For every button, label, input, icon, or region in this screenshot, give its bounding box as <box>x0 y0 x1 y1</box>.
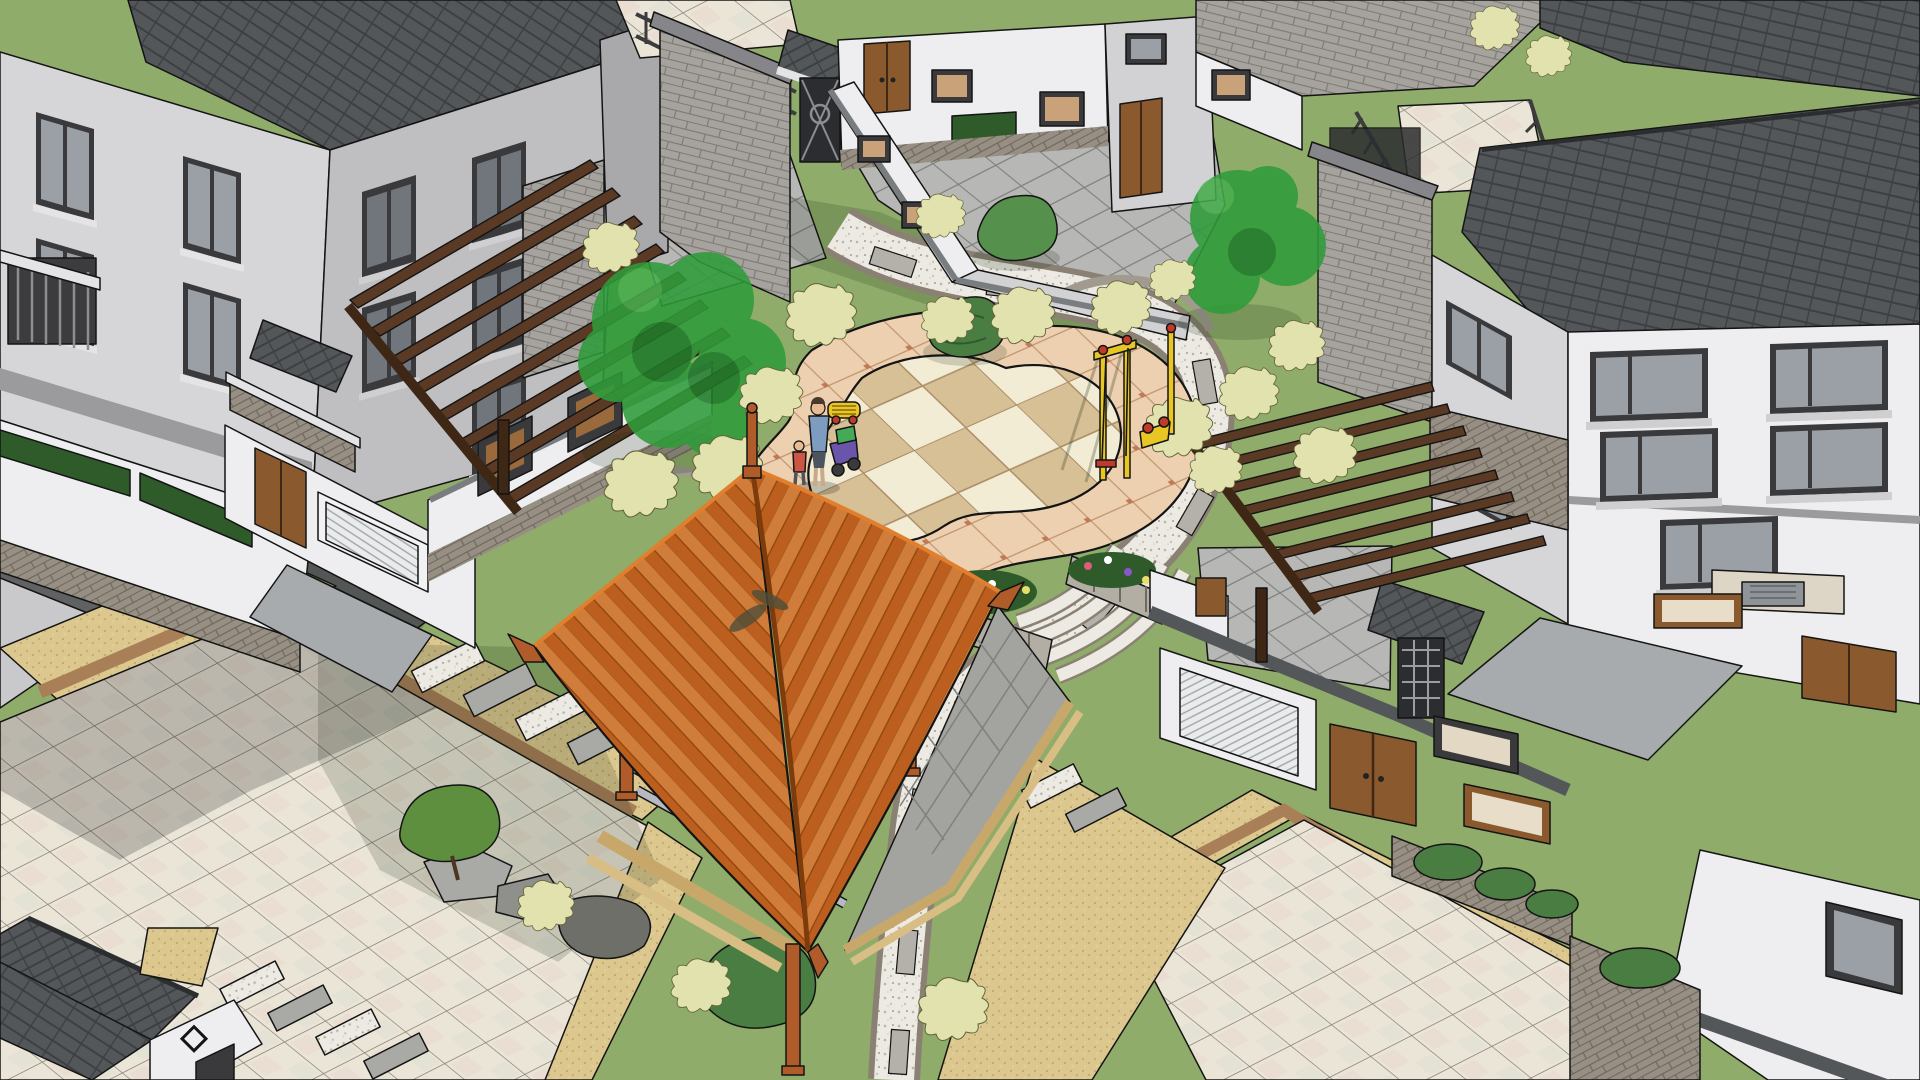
tree-foliage-dark <box>688 352 740 404</box>
window-glass <box>1662 600 1734 622</box>
toy-wheel <box>849 416 857 424</box>
window-glass <box>1131 39 1161 59</box>
balcony <box>0 250 100 350</box>
door-handle <box>1378 776 1384 782</box>
post-base <box>616 792 637 800</box>
flower <box>1142 576 1150 584</box>
rider-seat <box>1159 417 1169 427</box>
flower <box>1124 568 1132 576</box>
post <box>786 944 800 1072</box>
flower <box>1104 556 1112 564</box>
pergola-post <box>1256 588 1267 662</box>
tree-highlight <box>1198 178 1234 214</box>
pergola-post <box>498 420 509 494</box>
door-handle <box>891 78 896 83</box>
finial-collar <box>743 466 761 478</box>
window <box>1586 348 1712 430</box>
window <box>1766 422 1892 504</box>
play-pole <box>1168 330 1174 434</box>
play-cap <box>1099 346 1108 355</box>
stroller-canopy <box>836 426 856 444</box>
shrub <box>1600 948 1680 988</box>
window <box>1766 340 1892 422</box>
post-base <box>782 1066 804 1075</box>
head <box>794 441 804 451</box>
flower <box>1084 562 1092 570</box>
shrub <box>1414 844 1482 880</box>
shorts <box>812 452 826 468</box>
tree-foliage-dark <box>632 322 692 382</box>
lattice-window <box>932 70 972 102</box>
render-viewport[interactable]: Aerial 3D model view of a residential co… <box>0 0 1920 1080</box>
door-handle <box>1363 773 1369 779</box>
finial-mast <box>747 412 757 472</box>
lattice-window <box>1040 92 1084 126</box>
play-cap <box>1123 336 1132 345</box>
play-cap <box>1167 324 1176 333</box>
stroller-wheel <box>832 464 844 476</box>
torso <box>809 416 829 452</box>
path-band <box>888 1029 909 1074</box>
low-wood-window <box>1654 594 1742 628</box>
shrub <box>1475 868 1535 900</box>
torso <box>793 452 806 472</box>
toy-wheel <box>832 416 840 424</box>
window <box>180 156 244 272</box>
rider-seat <box>1143 423 1153 433</box>
window <box>1596 428 1722 510</box>
tree-highlight <box>618 268 662 312</box>
window-lattice <box>1217 75 1245 95</box>
door-handle <box>880 78 885 83</box>
scene-canvas[interactable]: Aerial 3D model view of a residential co… <box>0 0 1920 1080</box>
wall-window <box>1196 578 1226 616</box>
window <box>33 112 97 228</box>
window-lattice <box>937 75 967 97</box>
finial-ball <box>747 403 757 413</box>
window-lattice <box>863 141 885 157</box>
window-lattice <box>1045 97 1079 121</box>
shrub <box>1526 890 1578 918</box>
tree-foliage-dark <box>1228 228 1276 276</box>
tree-foliage <box>1238 166 1298 226</box>
flower-foliage <box>1068 552 1156 588</box>
stroller-wheel <box>848 458 860 470</box>
swing-seat <box>1096 460 1116 467</box>
flower <box>1022 586 1030 594</box>
